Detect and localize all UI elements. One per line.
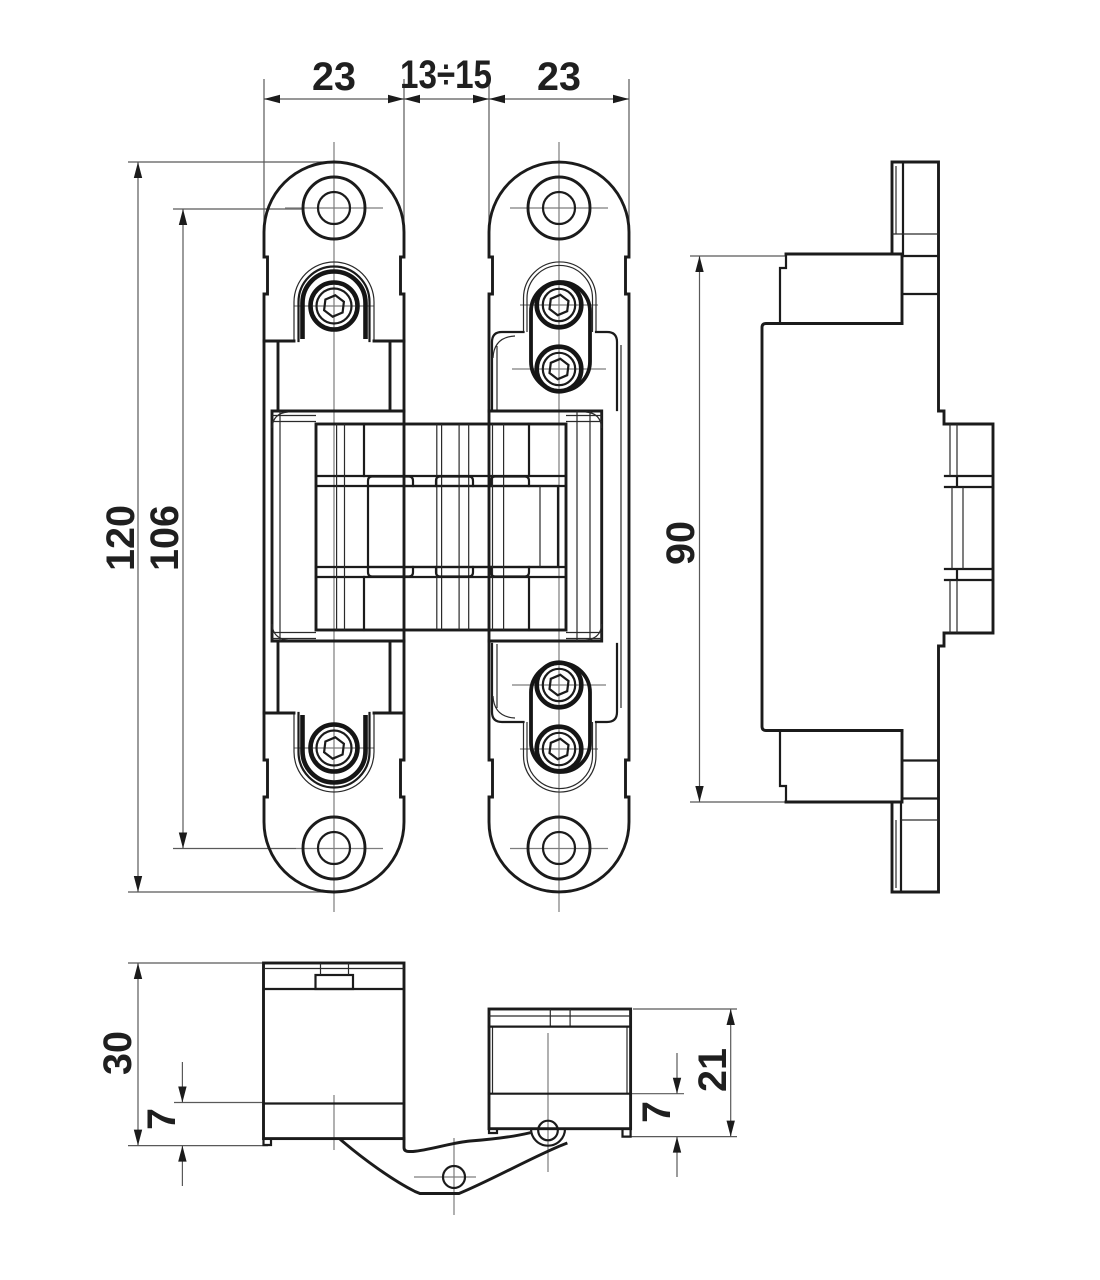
svg-text:21: 21 [691, 1048, 735, 1092]
svg-text:23: 23 [537, 55, 581, 99]
svg-text:30: 30 [96, 1031, 140, 1075]
svg-text:7: 7 [635, 1101, 679, 1123]
svg-text:106: 106 [143, 505, 187, 571]
svg-text:7: 7 [140, 1108, 184, 1130]
svg-text:90: 90 [659, 521, 703, 565]
svg-text:23: 23 [312, 55, 356, 99]
svg-text:120: 120 [99, 505, 143, 571]
svg-text:13÷15: 13÷15 [400, 53, 492, 97]
